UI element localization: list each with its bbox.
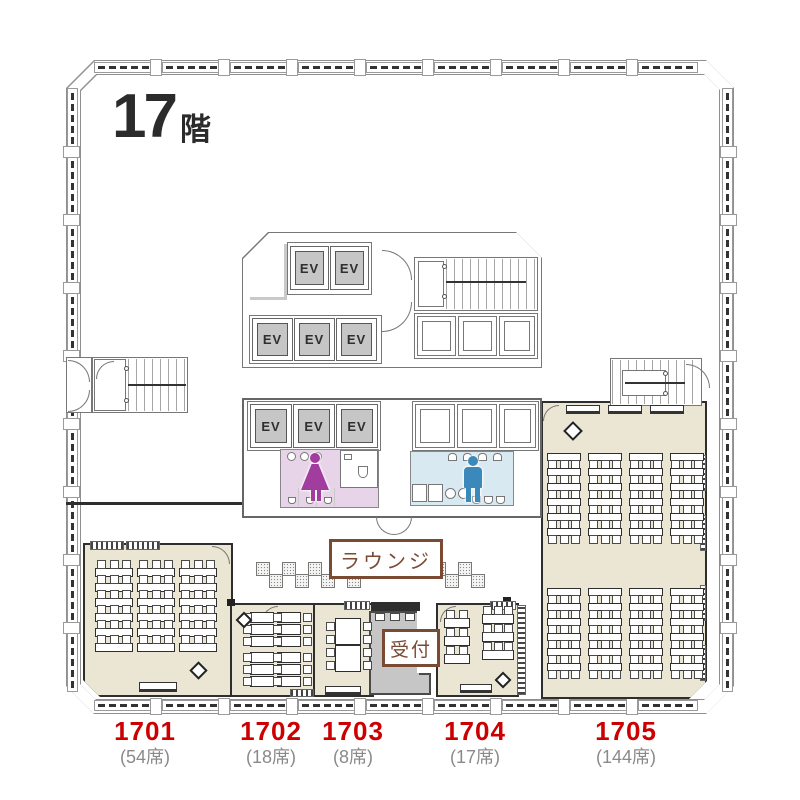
chair	[164, 590, 173, 599]
desk	[482, 650, 514, 660]
floor-number: 17	[112, 90, 175, 145]
window	[570, 62, 630, 73]
partition-strip	[344, 601, 370, 610]
desk	[250, 636, 274, 647]
window	[67, 496, 78, 556]
elevator-cell: EV	[336, 318, 377, 361]
sink	[287, 452, 296, 461]
partition-strip	[90, 541, 124, 550]
chair	[273, 625, 282, 634]
room-label-1701: 1701 (54席)	[80, 718, 210, 768]
chair	[194, 605, 203, 614]
stool	[375, 613, 385, 621]
chair	[181, 590, 190, 599]
window-mullion	[720, 350, 737, 362]
conference-table	[335, 618, 361, 645]
chair	[152, 575, 161, 584]
stall-divider	[298, 488, 299, 506]
window-mullion	[354, 698, 366, 715]
chair	[504, 642, 513, 651]
chair	[110, 605, 119, 614]
chair	[446, 646, 455, 655]
window-mullion	[720, 554, 737, 566]
window-mullion	[63, 282, 80, 294]
icon-leg	[311, 490, 315, 501]
service-shaft	[415, 404, 455, 448]
chair	[630, 670, 639, 679]
chair	[548, 535, 557, 544]
window	[638, 62, 698, 73]
chair	[164, 575, 173, 584]
room-seats: (54席)	[80, 748, 210, 768]
elevator-car: EV	[299, 323, 330, 356]
window-mullion	[63, 418, 80, 430]
chair	[459, 646, 468, 655]
lounge-table	[256, 562, 270, 576]
chair	[194, 635, 203, 644]
chair	[243, 665, 252, 674]
window	[67, 632, 78, 692]
partition-strip	[126, 541, 160, 550]
chair	[560, 535, 569, 544]
window-mullion	[422, 59, 434, 76]
desk	[444, 636, 470, 646]
chair	[152, 560, 161, 569]
sink	[344, 454, 352, 460]
chair	[139, 635, 148, 644]
window	[162, 700, 222, 711]
window	[230, 62, 290, 73]
window-mullion	[626, 698, 638, 715]
stair-post	[442, 264, 447, 269]
chair	[494, 642, 503, 651]
chair	[589, 670, 598, 679]
chair	[273, 637, 282, 646]
chair	[206, 575, 215, 584]
stair-rail	[128, 384, 186, 386]
chair	[571, 670, 580, 679]
chair	[303, 625, 312, 634]
bench	[608, 405, 642, 414]
window	[366, 700, 426, 711]
stair-post	[124, 398, 129, 403]
bench	[325, 686, 361, 695]
chair	[671, 670, 680, 679]
chair	[194, 590, 203, 599]
chair	[694, 670, 703, 679]
chair	[642, 535, 651, 544]
floor-plan-canvas: EVEVEVEVEVEVEVEV 17 階 ラウンジ 受付 1701 (54席)…	[0, 0, 800, 800]
core-wall	[250, 297, 287, 300]
chair	[152, 635, 161, 644]
window	[67, 564, 78, 624]
chair	[671, 535, 680, 544]
chair	[326, 648, 335, 657]
window-mullion	[720, 486, 737, 498]
elevator-car: EV	[335, 251, 364, 285]
window	[722, 632, 733, 692]
chair	[181, 605, 190, 614]
chair	[122, 605, 131, 614]
chair	[589, 535, 598, 544]
lounge-table	[471, 574, 485, 588]
chair	[152, 605, 161, 614]
chair	[612, 535, 621, 544]
chair	[446, 610, 455, 619]
chair	[97, 620, 106, 629]
service-shaft-inner	[420, 409, 450, 443]
chair	[683, 670, 692, 679]
window	[94, 700, 154, 711]
chair	[683, 535, 692, 544]
window-mullion	[720, 146, 737, 158]
chair	[110, 590, 119, 599]
chair	[164, 605, 173, 614]
chair	[326, 635, 335, 644]
stool	[390, 613, 400, 621]
window	[230, 700, 290, 711]
icon-head	[468, 456, 478, 466]
chair	[303, 677, 312, 686]
chair	[548, 670, 557, 679]
chair	[243, 677, 252, 686]
chair	[181, 560, 190, 569]
window	[570, 700, 630, 711]
stair-post	[124, 366, 129, 371]
urinal	[448, 453, 457, 461]
chair	[122, 575, 131, 584]
chair	[483, 624, 492, 633]
window-mullion	[720, 214, 737, 226]
chair	[642, 670, 651, 679]
floor-suffix: 階	[180, 114, 211, 145]
room-label-1704: 1704 (17席)	[410, 718, 540, 768]
window-mullion	[63, 214, 80, 226]
window	[94, 62, 154, 73]
window	[67, 156, 78, 216]
chair	[206, 620, 215, 629]
window-mullion	[150, 59, 162, 76]
elevator-cell: EV	[330, 246, 369, 290]
chair	[363, 635, 372, 644]
window	[67, 428, 78, 488]
elevator-car: EV	[341, 409, 373, 443]
window-mullion	[558, 698, 570, 715]
service-shaft	[499, 404, 536, 448]
chair	[181, 635, 190, 644]
window-mullion	[63, 554, 80, 566]
window-mullion	[626, 59, 638, 76]
chair	[181, 575, 190, 584]
chair	[326, 622, 335, 631]
elevator-car: EV	[341, 323, 372, 356]
partition-strip	[290, 689, 314, 697]
chair	[243, 653, 252, 662]
chair	[122, 590, 131, 599]
chair	[504, 624, 513, 633]
chair	[630, 535, 639, 544]
icon-dress	[301, 464, 329, 490]
stair-rail	[446, 281, 526, 283]
window	[162, 62, 222, 73]
chair	[152, 620, 161, 629]
chair	[504, 606, 513, 615]
chair	[139, 620, 148, 629]
chair	[446, 628, 455, 637]
window	[722, 156, 733, 216]
chair	[206, 635, 215, 644]
service-shaft	[457, 404, 497, 448]
chair	[653, 535, 662, 544]
window-mullion	[218, 59, 230, 76]
chair	[110, 575, 119, 584]
movable-partition	[517, 605, 526, 695]
chair	[181, 620, 190, 629]
chair	[194, 620, 203, 629]
counter	[428, 484, 443, 502]
chair	[206, 590, 215, 599]
chair	[122, 635, 131, 644]
chair	[363, 661, 372, 670]
toilet	[288, 497, 296, 504]
chair	[273, 653, 282, 662]
lounge-table	[295, 574, 309, 588]
chair	[303, 665, 312, 674]
chair	[363, 648, 372, 657]
service-shaft-inner	[462, 409, 492, 443]
chair	[194, 560, 203, 569]
room-seats: (144席)	[561, 748, 691, 768]
window	[722, 224, 733, 284]
icon-leg	[317, 490, 321, 501]
chair	[139, 605, 148, 614]
reception-label: 受付	[382, 629, 440, 667]
chair	[694, 535, 703, 544]
window	[67, 88, 78, 148]
chair	[483, 642, 492, 651]
window-mullion	[63, 486, 80, 498]
elevator-cell: EV	[252, 318, 293, 361]
window-mullion	[150, 698, 162, 715]
conference-table	[335, 645, 361, 672]
counter	[412, 484, 427, 502]
chair	[122, 620, 131, 629]
chair	[273, 665, 282, 674]
window-mullion	[63, 622, 80, 634]
elevator-cell: EV	[293, 404, 335, 448]
stair-rail	[625, 382, 685, 384]
icon-head	[310, 453, 320, 463]
window-mullion	[286, 698, 298, 715]
desk	[137, 643, 175, 652]
chair	[273, 677, 282, 686]
service-shaft	[458, 316, 497, 356]
elevator-car: EV	[295, 251, 324, 285]
bench	[566, 405, 600, 414]
desk	[250, 612, 274, 623]
window-mullion	[720, 282, 737, 294]
chair	[110, 635, 119, 644]
chair	[571, 535, 580, 544]
desk	[444, 654, 470, 664]
elevator-car: EV	[255, 409, 287, 443]
desk	[179, 643, 217, 652]
chair	[273, 613, 282, 622]
elevator-cell: EV	[290, 246, 329, 290]
chair	[152, 590, 161, 599]
chair	[206, 605, 215, 614]
chair	[97, 575, 106, 584]
desk	[250, 664, 274, 675]
chair	[139, 560, 148, 569]
chair	[206, 560, 215, 569]
chair	[139, 590, 148, 599]
room-seats: (8席)	[288, 748, 418, 768]
chair	[494, 606, 503, 615]
desk	[250, 624, 274, 635]
room-number: 1704	[410, 718, 540, 745]
window-mullion	[63, 146, 80, 158]
window-mullion	[422, 698, 434, 715]
window	[722, 292, 733, 352]
window-mullion	[720, 622, 737, 634]
window-mullion	[558, 59, 570, 76]
lounge-table	[458, 562, 472, 576]
icon-leg	[475, 488, 480, 502]
bench	[139, 682, 177, 692]
chair	[243, 637, 252, 646]
chair	[560, 670, 569, 679]
elevator-cell: EV	[250, 404, 292, 448]
womens-restroom-icon	[300, 453, 330, 501]
desk	[482, 632, 514, 642]
chair	[97, 590, 106, 599]
elevator-cell: EV	[336, 404, 378, 448]
desk	[250, 652, 274, 663]
service-shaft-inner	[422, 321, 451, 351]
room-number: 1701	[80, 718, 210, 745]
service-shaft-inner	[504, 321, 530, 351]
chair	[459, 628, 468, 637]
room-label-1703: 1703 (8席)	[288, 718, 418, 768]
icon-torso	[464, 467, 482, 488]
desk	[482, 614, 514, 624]
chair	[97, 560, 106, 569]
window	[67, 292, 78, 352]
window	[366, 62, 426, 73]
elevator-car: EV	[257, 323, 288, 356]
window-mullion	[286, 59, 298, 76]
elevator-cell: EV	[294, 318, 335, 361]
chair	[122, 560, 131, 569]
reception-counter	[371, 602, 420, 611]
window	[298, 62, 358, 73]
sink	[445, 488, 456, 499]
window-mullion	[490, 59, 502, 76]
bench	[650, 405, 684, 414]
chair	[194, 575, 203, 584]
window	[722, 496, 733, 556]
chair	[110, 560, 119, 569]
bench	[460, 684, 492, 693]
stair-post	[663, 371, 668, 376]
window	[67, 224, 78, 284]
stair-landing	[418, 261, 444, 307]
window	[434, 700, 494, 711]
lounge-label: ラウンジ	[329, 539, 443, 579]
room-number: 1705	[561, 718, 691, 745]
window-mullion	[218, 698, 230, 715]
window-mullion	[490, 698, 502, 715]
desk	[95, 643, 133, 652]
chair	[459, 610, 468, 619]
window-mullion	[354, 59, 366, 76]
chair	[601, 670, 610, 679]
lounge-table	[308, 562, 322, 576]
chair	[303, 653, 312, 662]
window	[722, 88, 733, 148]
room-number: 1703	[288, 718, 418, 745]
urinal	[493, 453, 502, 461]
lounge-table	[269, 574, 283, 588]
chair	[326, 661, 335, 670]
window	[298, 700, 358, 711]
room-seats: (17席)	[410, 748, 540, 768]
chair	[303, 613, 312, 622]
column	[227, 599, 235, 606]
toilet	[496, 496, 505, 504]
chair	[483, 606, 492, 615]
window	[434, 62, 494, 73]
room-label-1705: 1705 (144席)	[561, 718, 691, 768]
chair	[139, 575, 148, 584]
window	[502, 700, 562, 711]
chair	[164, 560, 173, 569]
chair	[653, 670, 662, 679]
chair	[363, 622, 372, 631]
window	[502, 62, 562, 73]
chair	[303, 637, 312, 646]
window	[638, 700, 698, 711]
chair	[164, 635, 173, 644]
chair	[164, 620, 173, 629]
lounge-table	[445, 574, 459, 588]
service-shaft	[417, 316, 456, 356]
window	[722, 360, 733, 420]
stall-divider	[334, 488, 335, 506]
chair	[110, 620, 119, 629]
desk	[444, 618, 470, 628]
lounge-table	[282, 562, 296, 576]
stair-post	[663, 391, 668, 396]
chair	[612, 670, 621, 679]
chair	[97, 635, 106, 644]
elevator-car: EV	[298, 409, 330, 443]
stair-treads	[446, 259, 536, 309]
service-shaft-inner	[504, 409, 531, 443]
desk	[250, 676, 274, 687]
service-shaft	[499, 316, 535, 356]
window-mullion	[720, 418, 737, 430]
toilet	[358, 466, 368, 478]
service-shaft-inner	[463, 321, 492, 351]
mens-restroom-icon	[460, 456, 486, 502]
chair	[97, 605, 106, 614]
window	[722, 564, 733, 624]
window	[722, 428, 733, 488]
stool	[405, 613, 415, 621]
chair	[494, 624, 503, 633]
